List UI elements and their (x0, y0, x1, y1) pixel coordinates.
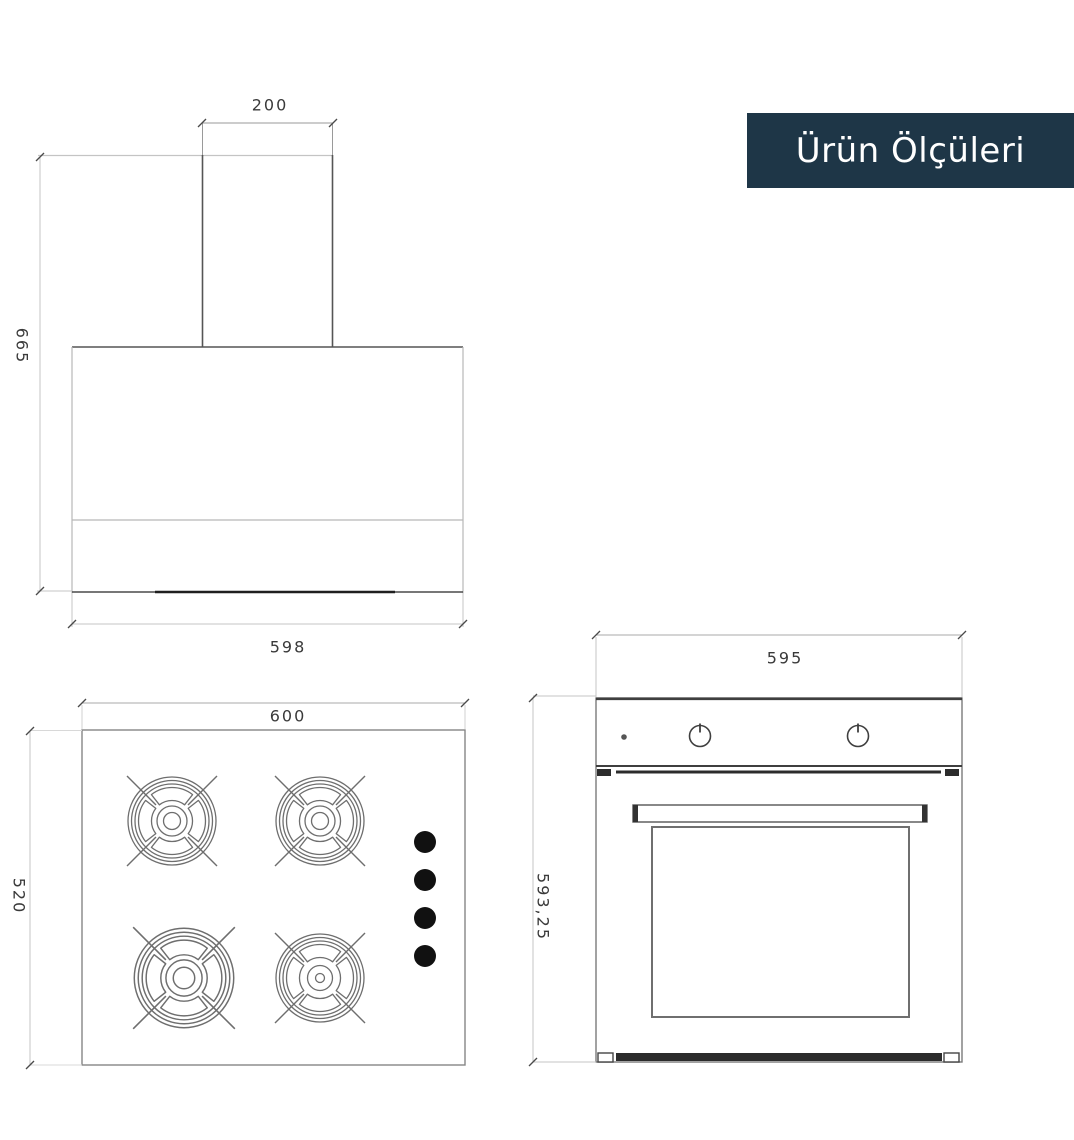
cooktop-knob-4 (414, 945, 436, 967)
cooktop-drawing (26, 699, 469, 1069)
oven-bottom-trim (598, 1053, 959, 1062)
hood-chimney-width-label: 200 (252, 96, 289, 115)
oven-height-label: 593,25 (534, 873, 553, 941)
oven-door-window (652, 827, 909, 1017)
cooktop-width-label: 600 (270, 707, 307, 726)
hood-width-label: 598 (270, 638, 307, 657)
oven-width-label: 595 (767, 649, 804, 668)
product-dimensions-sheet: 200 665 598 600 520 595 593,25 Ürün Ölçü… (0, 0, 1074, 1140)
hood-height-label: 665 (13, 328, 32, 365)
cooktop-knob-2 (414, 869, 436, 891)
hood-width-dimension (68, 593, 467, 628)
oven-drawing (529, 631, 966, 1066)
oven-door-handle (633, 805, 927, 822)
hood-chimney (203, 123, 333, 347)
title-badge: Ürün Ölçüleri (747, 113, 1074, 188)
title-badge-label: Ürün Ölçüleri (796, 131, 1026, 171)
oven-indicator-dot (621, 734, 627, 740)
hood-chimney-width-dimension (198, 119, 337, 127)
hood-height-dimension (36, 153, 72, 595)
cooktop-knob-3 (414, 907, 436, 929)
cooktop-knob-1 (414, 831, 436, 853)
hood-body (72, 347, 463, 593)
cooktop-outline (82, 730, 465, 1065)
cooktop-depth-dimension (26, 727, 82, 1069)
hood-drawing (36, 119, 467, 628)
cooktop-depth-label: 520 (10, 878, 29, 915)
